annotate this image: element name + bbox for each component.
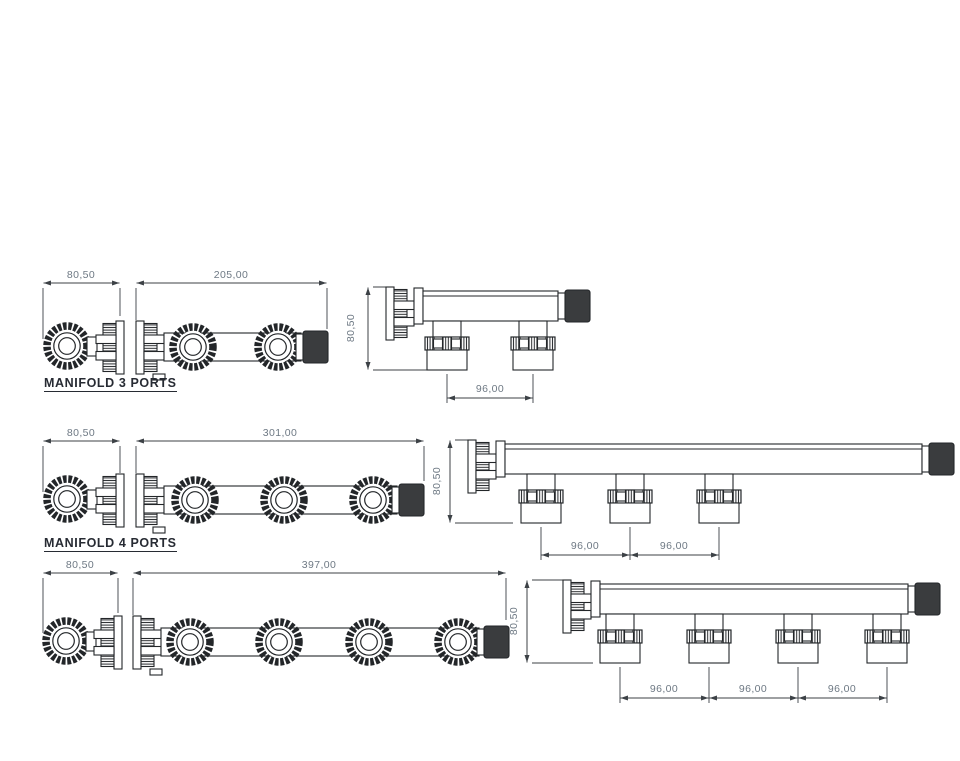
- dim-3ports-length: 205,00: [214, 269, 249, 281]
- drawing-sheet: 80,50 205,00 80,50 96,00 MANIFOLD 3 PORT…: [0, 0, 960, 761]
- manifold-4ports-views: [43, 440, 954, 560]
- dim-4ports-height: 80,50: [431, 467, 443, 495]
- manifold-3ports-label: MANIFOLD 3 PORTS: [44, 376, 177, 392]
- manifold-4ports-label: MANIFOLD 4 PORTS: [44, 536, 177, 552]
- dim-5ports-length: 397,00: [302, 559, 337, 571]
- dim-3ports-end-width: 80,50: [67, 269, 95, 281]
- dim-4ports-port-spacing-1: 96,00: [571, 540, 599, 552]
- dim-4ports-end-width: 80,50: [67, 427, 95, 439]
- manifold-5ports-views: [43, 573, 940, 703]
- dim-5ports-height: 80,50: [508, 607, 520, 635]
- dim-3ports-port-spacing-1: 96,00: [476, 383, 504, 395]
- dim-5ports-port-spacing-1: 96,00: [650, 683, 678, 695]
- dim-5ports-port-spacing-2: 96,00: [739, 683, 767, 695]
- dim-3ports-height: 80,50: [345, 314, 357, 342]
- dim-4ports-length: 301,00: [263, 427, 298, 439]
- dim-5ports-port-spacing-3: 96,00: [828, 683, 856, 695]
- dim-4ports-port-spacing-2: 96,00: [660, 540, 688, 552]
- dim-5ports-end-width: 80,50: [66, 559, 94, 571]
